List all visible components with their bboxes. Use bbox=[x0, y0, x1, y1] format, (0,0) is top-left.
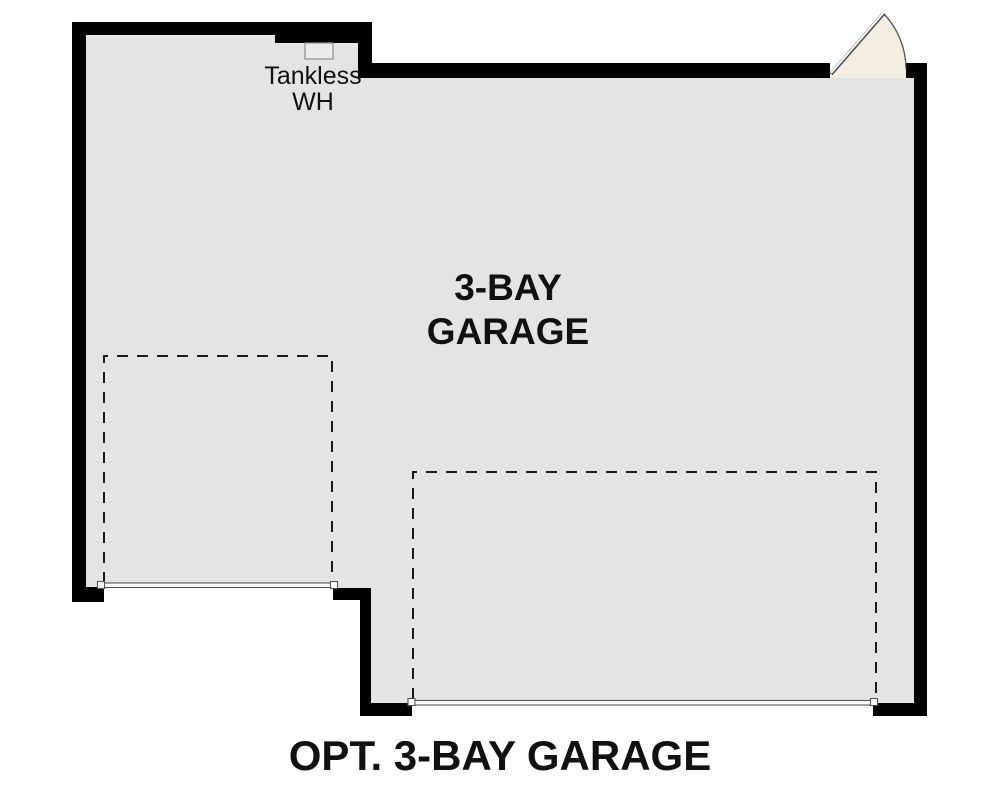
wall-segment-mid-step-vertical bbox=[360, 588, 371, 716]
water-heater-label-line2: WH bbox=[233, 89, 393, 115]
room-label-line2: GARAGE bbox=[358, 310, 658, 354]
tankless-water-heater-unit bbox=[305, 43, 333, 59]
garage-door-panel bbox=[412, 701, 873, 706]
wall-segment-right bbox=[914, 63, 927, 716]
entry-door-swing bbox=[830, 12, 906, 78]
plan-caption: OPT. 3-BAY GARAGE bbox=[0, 733, 1000, 779]
wall-segment-wh-notch bbox=[275, 22, 372, 43]
wall-segment-bottom-right-stub bbox=[873, 703, 926, 716]
garage-door-jamb-square bbox=[98, 582, 105, 589]
room-label-line1: 3-BAY bbox=[358, 266, 658, 310]
door-swing-fill bbox=[830, 13, 906, 78]
wall-segment-top-right bbox=[372, 63, 830, 78]
floorplan-drawing bbox=[0, 0, 1000, 800]
single-bay-garage-door bbox=[98, 582, 338, 589]
wall-segment-left bbox=[72, 22, 86, 602]
garage-floor bbox=[86, 35, 914, 703]
garage-door-panel bbox=[101, 583, 335, 588]
wall-segment-mid-step-horizontal bbox=[333, 588, 371, 600]
floorplan-page: Tankless WH 3-BAY GARAGE OPT. 3-BAY GARA… bbox=[0, 0, 1000, 800]
wall-segment-bottom-left-stub bbox=[72, 587, 104, 602]
garage-door-jamb-square bbox=[871, 699, 878, 706]
room-label: 3-BAY GARAGE bbox=[358, 266, 658, 354]
water-heater-label: Tankless WH bbox=[233, 63, 393, 115]
water-heater-label-line1: Tankless bbox=[233, 63, 393, 89]
garage-door-jamb-square bbox=[331, 582, 338, 589]
garage-door-jamb-square bbox=[408, 699, 415, 706]
